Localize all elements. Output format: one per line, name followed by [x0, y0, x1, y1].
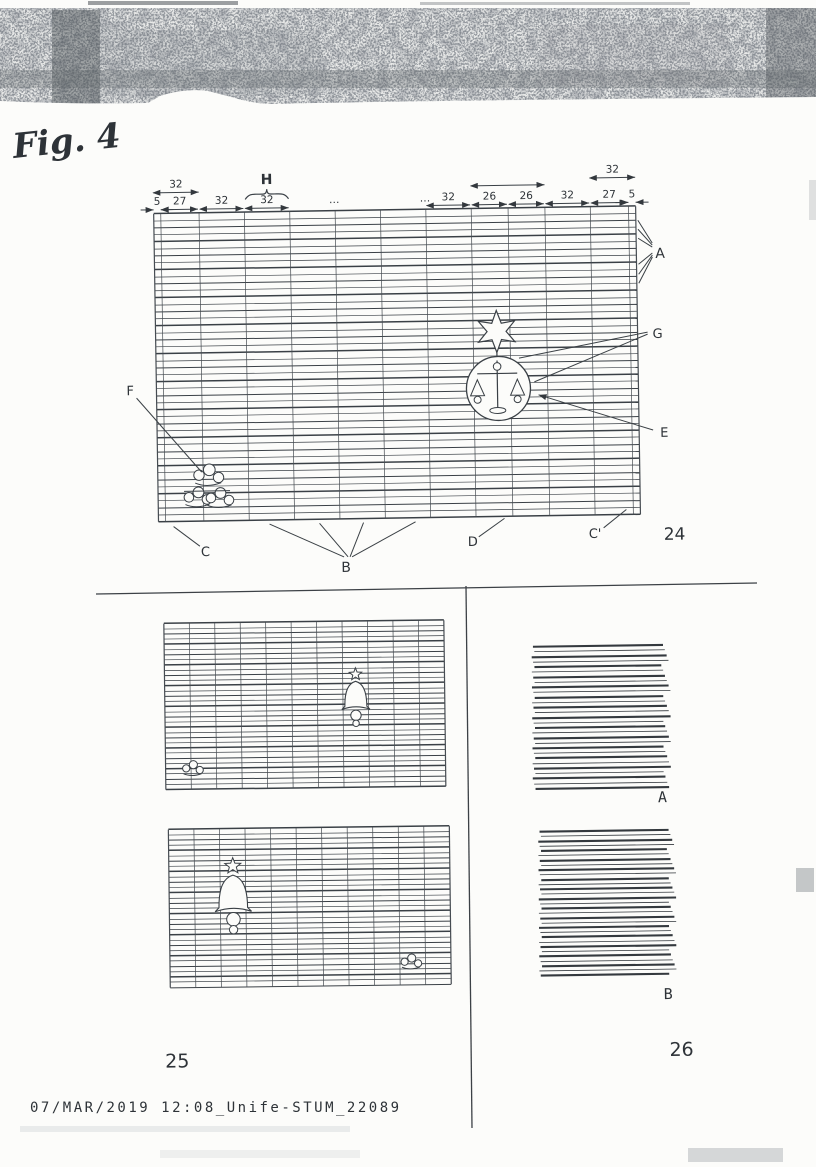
fig25-top-hline — [164, 641, 444, 644]
dim-arrow-upper — [590, 177, 635, 178]
fig26-b-line — [540, 888, 672, 890]
fig26-b-line — [540, 830, 669, 832]
fig25-top-hline — [165, 703, 445, 706]
fig24-motif-flower — [215, 488, 226, 499]
fig26-a-line — [536, 787, 670, 789]
scan-edge-artifacts — [20, 180, 816, 1162]
fig26-a-line — [532, 685, 669, 687]
scales-knob — [493, 363, 501, 371]
fig24-motif-flower-scroll — [195, 483, 221, 486]
fig25-bottom-hline — [168, 826, 449, 829]
fig24-label-d: D — [468, 535, 478, 550]
fig26-b-line — [540, 902, 669, 904]
fig26-b-line — [539, 926, 669, 928]
fig26-line-block-b — [537, 830, 677, 976]
fig26-b-line — [541, 864, 672, 866]
fig26-b-line — [539, 868, 675, 870]
fig25-top-hline — [164, 672, 444, 675]
fig26-a-line — [533, 690, 670, 692]
fig24-grid-hline — [158, 473, 640, 481]
fig25-top-hline — [164, 661, 444, 664]
fig24-star-scales-emblem — [465, 310, 531, 421]
fig25-bell-top-clapper — [353, 720, 359, 726]
noise-top-dash-1 — [88, 1, 238, 5]
dim-label-upper: 32 — [169, 178, 183, 190]
fig26-b-line — [541, 849, 667, 851]
fig24-grid-hline — [154, 242, 636, 250]
fig26-b-line — [539, 941, 674, 943]
fig26-b-line — [539, 883, 671, 885]
fig26-b-line — [542, 935, 673, 937]
dim-label: 27 — [173, 195, 187, 207]
fig25-bottom-hline — [169, 842, 450, 845]
fig24-grid-hline — [156, 374, 638, 382]
fig25-motif-top — [189, 761, 197, 769]
fig24-grid-hline — [155, 290, 637, 298]
fig25-top-hline — [164, 626, 444, 629]
noise-shade-1 — [100, 30, 320, 96]
fig26-a-line — [535, 681, 667, 683]
fig24-grid-hline — [154, 248, 636, 256]
dim-label: 26 — [483, 190, 497, 202]
fig26-a-line — [535, 772, 663, 774]
fig25-top-hline — [165, 677, 445, 680]
fig26-b-line — [541, 960, 673, 962]
fig25-top-hline — [165, 719, 445, 722]
fig24-motif-flower — [224, 495, 234, 505]
dim-label-upper: 32 — [606, 164, 620, 176]
fig26-a-line — [533, 706, 666, 708]
fig24-label-c: C — [201, 545, 210, 560]
fig24-dimension-annotations: 5273232……322626322753232H — [140, 163, 649, 210]
fig24-grid-hline — [156, 346, 638, 354]
fig24-grid-hline — [158, 479, 640, 487]
fig24-grid-hline — [157, 388, 639, 396]
fig26-b-line — [539, 911, 673, 913]
fig24-motif-flower — [194, 470, 205, 481]
fig25-bottom-hline — [169, 884, 450, 887]
scales-weight-right — [514, 396, 521, 403]
noise-top-dash-2 — [420, 2, 690, 5]
fig25-top-hline — [166, 781, 446, 784]
fig24-grid-hline — [155, 318, 637, 326]
scales-base — [490, 407, 506, 413]
fig25-bottom-hline — [168, 832, 449, 835]
fig25-top-hline — [164, 651, 444, 654]
fig26-b-line — [538, 854, 668, 856]
dim-label: 5 — [154, 196, 161, 208]
fig26-a-line — [532, 716, 670, 718]
fig24-grid-hline — [156, 339, 638, 347]
fig25-top-hline — [165, 755, 445, 758]
fig26-b-line — [540, 844, 674, 846]
noise-shade-2 — [540, 24, 730, 86]
fig25-top-hline — [165, 735, 445, 738]
fig25-bottom-hline — [170, 973, 451, 976]
dim-label: 5 — [628, 188, 635, 200]
fig26-b-line — [542, 964, 675, 966]
fig26-b-line — [541, 974, 669, 976]
fig24-grid-hline — [154, 255, 636, 263]
fig26-a-line — [534, 721, 664, 723]
fig25-bell-top-body — [342, 681, 370, 709]
fig26-a-line — [533, 777, 666, 779]
fig25-top-hline — [165, 688, 445, 691]
fig26-a-line — [534, 767, 671, 769]
fig25-bottom-hline — [169, 900, 450, 903]
fig25-top-hline — [165, 740, 445, 743]
fig25-number: 25 — [165, 1050, 189, 1072]
fig25-motif-top — [183, 765, 190, 772]
fig26-b-line — [541, 878, 669, 880]
fig25-bottom-hline — [169, 905, 450, 908]
fig25-top-hline — [165, 730, 445, 733]
fig25-bottom-hline — [169, 858, 450, 861]
fig25-bell-motifs — [181, 667, 421, 972]
fig24-number: 24 — [664, 525, 686, 545]
fig24-grid-hline — [156, 354, 638, 362]
fig26-a-line — [534, 650, 664, 652]
fig25-bottom-hline — [170, 931, 451, 934]
fig25-weave-grid-bottom — [168, 826, 451, 988]
fig25-top-hline — [165, 709, 445, 712]
fig26-a-line — [532, 731, 667, 733]
dim-arrow — [509, 204, 544, 205]
fig25-bottom-hline — [169, 853, 450, 856]
fig24-grid-hline — [155, 311, 637, 319]
dim-arrow — [200, 208, 243, 209]
dim-label: 32 — [215, 195, 229, 207]
fig24-grid-hline — [154, 227, 636, 235]
fig25-bottom-hline — [170, 921, 451, 924]
fig24-grid-hline — [154, 220, 636, 228]
fig24-grid-hline — [158, 486, 640, 494]
dim-label: 32 — [260, 194, 274, 206]
fig25-top-hline — [166, 786, 446, 789]
fig26-b-line — [538, 840, 672, 842]
fig25-bottom-hline — [169, 910, 450, 913]
fig24-grid-hline — [155, 304, 637, 312]
fig25-bell-bottom-clapper — [229, 926, 237, 934]
fig26-b-line — [542, 907, 671, 909]
fig25-top-hline — [164, 667, 444, 670]
fig26-b-line — [542, 921, 677, 923]
fig26-a-line — [535, 726, 665, 728]
dim-arrow — [245, 208, 288, 209]
fig26-a-line — [533, 747, 664, 749]
fig26-a-line — [535, 742, 671, 744]
edge-streak-right — [809, 180, 816, 220]
fig26-a-line — [533, 645, 663, 647]
fig25-motif-bottom — [408, 954, 416, 962]
dim-arrow — [472, 204, 507, 205]
fig24-grid-hline — [158, 465, 640, 473]
fig25-bottom-hline — [170, 947, 451, 950]
fig25-top-hline — [165, 682, 445, 685]
fig25-bottom-hline — [170, 937, 451, 940]
fig24-grid-hline — [157, 417, 639, 425]
fig26-label-a: A — [658, 788, 667, 806]
fig26-a-line — [534, 751, 665, 753]
fig25-drawing: 25 — [160, 620, 452, 1073]
vertical-divider — [466, 586, 472, 1128]
fig26-a-line — [534, 665, 661, 667]
fig24-label-h: H — [261, 172, 273, 188]
handwritten-fig-title: Fig. 4 — [10, 116, 123, 167]
noise-dark-right — [766, 8, 816, 106]
fig26-a-line — [534, 782, 667, 784]
fig24-label-c-prime: C' — [589, 527, 602, 542]
fig26-a-line — [535, 711, 669, 713]
fig24-label-e: E — [660, 426, 668, 441]
fig26-b-line — [540, 931, 670, 933]
scan-canvas: Fig. 4 5273232……322626322753232H A — [0, 0, 816, 1167]
fig25-top-hline — [166, 765, 446, 768]
fig26-number: 26 — [669, 1039, 693, 1061]
fig25-bottom-hline — [169, 874, 450, 877]
fig24-weave-grid — [154, 206, 641, 522]
fig25-bottom-hline — [170, 963, 451, 966]
dim-ellipsis: … — [329, 194, 340, 206]
fig24-grid-hline — [155, 276, 637, 284]
bottom-smudge-2 — [688, 1148, 783, 1162]
fig26-a-line — [532, 701, 665, 703]
fig26-a-line — [535, 756, 667, 758]
dim-ellipsis: … — [420, 193, 431, 205]
fig26-b-line — [540, 917, 674, 919]
fig26-a-line — [535, 696, 664, 698]
fig25-top-hline — [165, 714, 445, 717]
fig24-grid-hline — [155, 270, 637, 278]
fig24-leader-lines — [134, 220, 657, 560]
fig25-top-hline — [164, 656, 444, 659]
fig26-a-line — [533, 762, 669, 764]
fig26-a-line — [532, 655, 667, 657]
fig25-top-hline — [165, 693, 445, 696]
fig25-bottom-hline — [169, 916, 450, 919]
fig24-grid-hline — [157, 437, 639, 445]
fig25-bottom-hline — [169, 868, 450, 871]
fig25-top-hline — [164, 620, 444, 623]
fig24-grid-hline — [159, 514, 641, 522]
fig25-motif-top — [196, 766, 203, 773]
bottom-smudge-3 — [160, 1150, 360, 1158]
dim-label: 32 — [442, 191, 456, 203]
fig25-bottom-hline — [170, 979, 451, 982]
dim-label: 26 — [519, 190, 533, 202]
fig26-b-line — [539, 954, 671, 956]
fig24-grid-hline — [157, 395, 639, 403]
scales-beam — [477, 373, 517, 374]
fig26-b-line — [541, 834, 670, 836]
fig24-grid-hline — [154, 206, 636, 214]
fig24-grid-hline — [157, 423, 639, 431]
fig25-bottom-hline — [170, 984, 451, 987]
fig26-a-line — [532, 670, 663, 672]
fig25-top-hline — [165, 724, 445, 727]
fig24-grid-hline — [154, 213, 636, 221]
fig26-b-line — [539, 897, 676, 899]
fig24-grid-hline — [158, 507, 640, 515]
fig25-bottom-hline — [169, 889, 450, 892]
fig26-b-line — [541, 945, 677, 947]
fig25-motif-bottom — [401, 958, 408, 965]
fig24-grid-hline — [157, 430, 639, 438]
bottom-smudge-1 — [20, 1126, 350, 1132]
fig24-motif-flower — [203, 464, 215, 476]
scan-noise-band — [0, 0, 816, 120]
fig25-top-hline — [164, 631, 444, 634]
fig24-label-f: F — [126, 384, 134, 399]
fig25-top-hline — [166, 760, 446, 763]
fig24-grid-hline — [155, 298, 637, 306]
dim-arrow-upper — [153, 192, 198, 193]
fig25-bottom-hline — [169, 879, 450, 882]
fig25-bottom-hline — [170, 942, 451, 945]
fig26-b-line — [542, 950, 669, 952]
fig25-bottom-hline — [168, 837, 449, 840]
fig24-label-a: A — [655, 246, 665, 262]
fig26-label-b: B — [664, 985, 673, 1003]
fig25-bottom-hline — [169, 863, 450, 866]
fig25-bell-bottom-loop — [227, 912, 241, 926]
fig25-top-hline — [164, 636, 444, 639]
fig26-drawing: A B 26 — [531, 645, 694, 1063]
fig24-motif-flower — [193, 487, 204, 498]
dim-label: 32 — [561, 189, 575, 201]
fig24-motif-flower — [213, 472, 224, 483]
fig25-top-hline — [166, 776, 446, 779]
fig26-a-line — [534, 737, 669, 739]
fig24-grid-hline — [157, 445, 639, 453]
fig24-grid-hline — [157, 409, 639, 417]
fig24-drawing: 5273232……322626322753232H A G E F C — [123, 163, 686, 580]
fig26-b-line — [540, 859, 671, 861]
fig24-grid-hline — [154, 234, 636, 242]
fig24-grid-hline — [156, 360, 638, 368]
fig25-weave-grid-top — [164, 620, 446, 790]
fax-footer-text: 07/MAR/2019 12:08_Unife-STUM_22089 — [30, 1100, 402, 1116]
fig24-label-g: G — [653, 327, 663, 342]
horizontal-divider — [96, 583, 757, 594]
fig24-grid-hline — [155, 262, 637, 270]
fig24-grid-hline — [156, 326, 638, 334]
fig25-top-hline — [164, 646, 444, 649]
fig24-grid-hline — [155, 283, 637, 291]
fig25-top-hline — [165, 745, 445, 748]
dim-arrow — [546, 203, 589, 204]
fig24-grid-hline — [156, 381, 638, 389]
dim-arrow — [427, 205, 470, 206]
fig25-bottom-hline — [169, 847, 450, 850]
fig24-motif-flower — [206, 493, 216, 503]
fig25-bell-top-loop — [351, 710, 362, 721]
dim-label: 27 — [602, 189, 616, 201]
fig26-b-line — [540, 873, 676, 875]
fig25-bottom-hline — [169, 895, 450, 898]
dim-arrow — [162, 209, 198, 210]
noise-dark-left — [52, 10, 100, 106]
fig26-a-line — [533, 676, 665, 678]
dim-arrow-upper — [471, 185, 545, 186]
fig24-grid-hline — [158, 458, 640, 466]
fig25-bottom-hline — [170, 926, 451, 929]
fig24-label-b: B — [341, 560, 351, 576]
scanned-patent-figure-page: Fig. 4 5273232……322626322753232H A — [0, 0, 816, 1167]
fig26-a-line — [533, 660, 668, 662]
fig25-motif-bottom — [414, 960, 421, 967]
fig25-top-hline — [166, 770, 446, 773]
fig24-grid-hline — [156, 332, 638, 340]
fig26-b-line — [541, 892, 674, 894]
fig24-motif-flower — [184, 492, 194, 502]
fig25-top-hline — [165, 750, 445, 753]
fig26-line-block-a — [531, 645, 672, 789]
fig26-b-line — [539, 969, 676, 971]
scales-weight-left — [474, 396, 481, 403]
fig25-top-hline — [165, 698, 445, 701]
edge-blob-right — [796, 868, 814, 892]
fig24-grid-hline — [158, 451, 640, 459]
